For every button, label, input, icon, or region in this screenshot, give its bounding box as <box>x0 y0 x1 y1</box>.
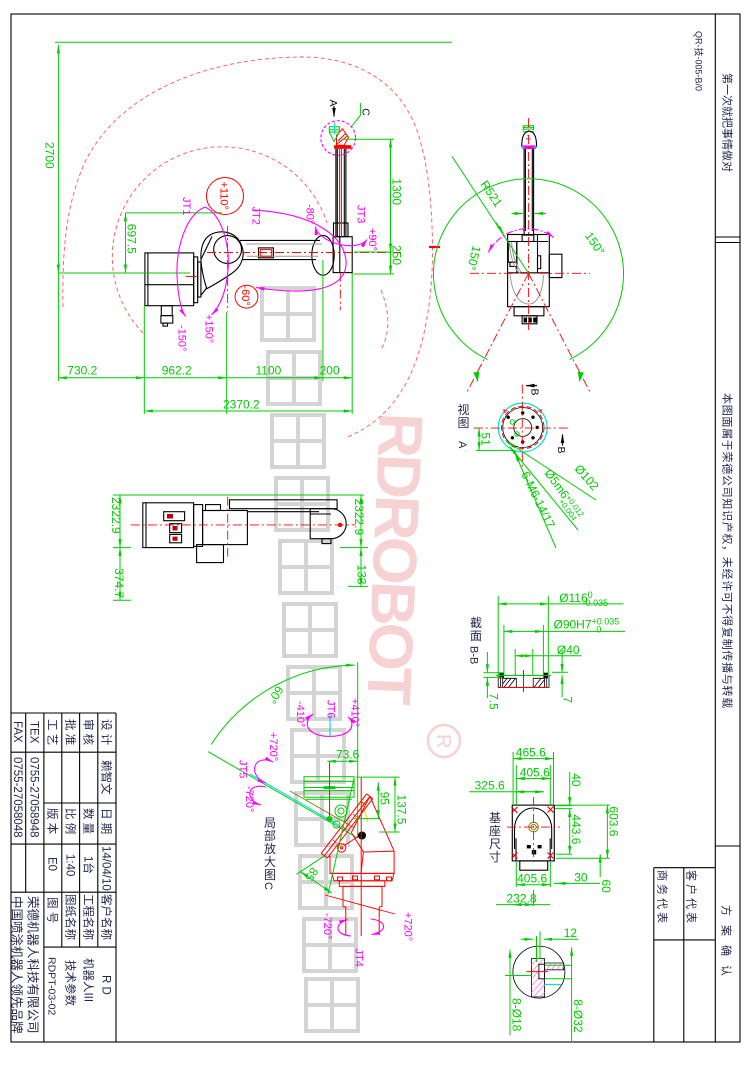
svg-text:A: A <box>456 441 468 449</box>
svg-text:+720°: +720° <box>267 732 279 761</box>
svg-text:40: 40 <box>569 773 583 787</box>
svg-text:QR-技-005-B/0: QR-技-005-B/0 <box>694 31 705 91</box>
svg-text:0755-27058948: 0755-27058948 <box>28 757 40 838</box>
svg-text:日 期: 日 期 <box>100 808 113 834</box>
svg-text:RDROBOT: RDROBOT <box>353 411 435 706</box>
svg-text:基: 基 <box>489 811 501 825</box>
svg-text:比 例: 比 例 <box>64 808 78 834</box>
svg-text:JT6: JT6 <box>325 700 337 718</box>
svg-text:图: 图 <box>264 868 276 882</box>
svg-text:137.5: 137.5 <box>394 794 408 824</box>
svg-text:Ø1160-0.035: Ø1160-0.035 <box>559 590 608 608</box>
svg-text:+720°: +720° <box>402 912 414 941</box>
svg-text:Ø102: Ø102 <box>572 462 602 494</box>
svg-text:TEX: TEX <box>28 721 40 744</box>
svg-text:1:40: 1:40 <box>64 854 76 876</box>
svg-text:批 准: 批 准 <box>64 719 78 745</box>
svg-text:7.5: 7.5 <box>487 693 501 710</box>
svg-text:73.6: 73.6 <box>336 748 360 762</box>
svg-text:E0: E0 <box>46 857 58 871</box>
svg-text:8-Ø32: 8-Ø32 <box>571 999 585 1033</box>
svg-text:697.5: 697.5 <box>125 224 139 254</box>
svg-text:面: 面 <box>470 629 482 643</box>
svg-text:+90°: +90° <box>366 228 378 251</box>
svg-text:1100: 1100 <box>256 364 282 378</box>
svg-text:60: 60 <box>599 879 613 893</box>
svg-text:325.6: 325.6 <box>475 779 505 793</box>
svg-text:465.6: 465.6 <box>516 746 546 760</box>
svg-text:第一次就把事情做对: 第一次就把事情做对 <box>721 73 735 172</box>
svg-text:603.6: 603.6 <box>606 806 620 836</box>
svg-text:数 量: 数 量 <box>81 808 95 834</box>
svg-text:B-B: B-B <box>468 646 480 664</box>
svg-text:商务代表: 商务代表 <box>656 870 670 926</box>
svg-text:设 计: 设 计 <box>100 719 113 746</box>
svg-text:局: 局 <box>264 816 276 830</box>
svg-text:FAX: FAX <box>11 721 23 743</box>
svg-text:图: 图 <box>458 416 470 430</box>
svg-text:C: C <box>360 108 372 116</box>
svg-text:1台: 1台 <box>81 856 95 874</box>
svg-text:寸: 寸 <box>489 850 501 864</box>
svg-text:放: 放 <box>264 841 276 856</box>
svg-text:60°: 60° <box>265 683 287 706</box>
svg-text:B: B <box>529 389 541 396</box>
svg-text:机器人III: 机器人III <box>81 958 95 1002</box>
svg-text:JT4: JT4 <box>353 949 365 967</box>
svg-text:JT5: JT5 <box>237 760 249 778</box>
svg-text:B: B <box>555 447 567 454</box>
svg-text:Ø40: Ø40 <box>557 643 580 657</box>
svg-text:JT2: JT2 <box>250 207 262 225</box>
svg-text:150°: 150° <box>582 229 608 258</box>
svg-text:7: 7 <box>561 696 575 703</box>
svg-text:中国喷涂机器人领先品牌: 中国喷涂机器人领先品牌 <box>10 896 25 1034</box>
svg-text:JT1: JT1 <box>180 197 192 215</box>
svg-text:405.6: 405.6 <box>520 765 550 779</box>
svg-text:部: 部 <box>264 828 276 843</box>
svg-text:-410°: -410° <box>294 701 306 727</box>
svg-text:本图面属于荣德公司知识产权，未经许可不得复制传播与转载: 本图面属于荣德公司知识产权，未经许可不得复制传播与转载 <box>721 393 735 709</box>
svg-text:审 核: 审 核 <box>81 719 95 746</box>
svg-text:赖智文: 赖智文 <box>100 760 114 795</box>
svg-text:-150°: -150° <box>176 325 188 351</box>
svg-text:+110°: +110° <box>218 182 230 210</box>
svg-text:C: C <box>262 882 274 890</box>
svg-text:133: 133 <box>355 565 369 585</box>
svg-text:405.6: 405.6 <box>517 871 547 885</box>
svg-text:1300: 1300 <box>390 178 404 205</box>
svg-text:大: 大 <box>264 855 276 869</box>
svg-text:版 本: 版 本 <box>46 808 60 835</box>
svg-text:荣德机器人科技有限公司: 荣德机器人科技有限公司 <box>26 896 41 1034</box>
svg-text:200: 200 <box>320 364 340 378</box>
svg-text:51: 51 <box>479 432 493 446</box>
svg-text:2322.9: 2322.9 <box>352 499 366 536</box>
svg-text:+150°: +150° <box>203 314 215 343</box>
svg-text:250: 250 <box>390 245 404 265</box>
svg-text:尺: 尺 <box>489 837 501 851</box>
svg-text:-720°: -720° <box>321 913 333 939</box>
svg-text:12: 12 <box>564 926 578 940</box>
svg-text:2322.9: 2322.9 <box>109 497 123 534</box>
svg-text:232.8: 232.8 <box>507 891 537 905</box>
svg-text:30: 30 <box>574 870 588 884</box>
svg-text:+410°: +410° <box>349 698 361 727</box>
svg-text:图纸名称: 图纸名称 <box>64 894 78 940</box>
svg-text:-80°: -80° <box>304 204 316 224</box>
svg-text:方案确认: 方案确认 <box>720 905 734 985</box>
svg-text:-720°: -720° <box>243 786 255 812</box>
svg-text:374.7: 374.7 <box>112 568 126 598</box>
svg-text:客户代表: 客户代表 <box>685 870 699 926</box>
svg-text:R: R <box>432 734 454 748</box>
svg-text:座: 座 <box>489 823 501 838</box>
svg-text:A: A <box>327 100 339 107</box>
svg-text:2700: 2700 <box>43 142 57 169</box>
svg-text:技术参数: 技术参数 <box>64 960 78 1006</box>
svg-text:730.2: 730.2 <box>67 364 97 378</box>
svg-text:-60°: -60° <box>239 286 251 306</box>
svg-text:8-Ø18: 8-Ø18 <box>510 998 524 1032</box>
svg-text:2370.2: 2370.2 <box>223 398 260 412</box>
svg-text:RDPT-03-02: RDPT-03-02 <box>46 957 58 1016</box>
svg-text:图 号: 图 号 <box>46 897 59 923</box>
svg-text:962.2: 962.2 <box>162 364 192 378</box>
svg-text:客户名称: 客户名称 <box>100 894 114 940</box>
svg-text:443.6: 443.6 <box>569 814 583 844</box>
svg-text:工程名称: 工程名称 <box>81 894 95 940</box>
svg-text:0755-27058048: 0755-27058048 <box>11 757 23 838</box>
svg-text:14/04/10: 14/04/10 <box>100 846 112 891</box>
svg-text:JT3: JT3 <box>355 205 367 223</box>
svg-text:95: 95 <box>378 792 392 806</box>
svg-text:R D: R D <box>100 975 112 995</box>
svg-text:视: 视 <box>458 402 470 417</box>
svg-text:150°: 150° <box>464 244 484 272</box>
svg-text:截: 截 <box>470 616 482 630</box>
svg-text:工 艺: 工 艺 <box>46 719 59 745</box>
